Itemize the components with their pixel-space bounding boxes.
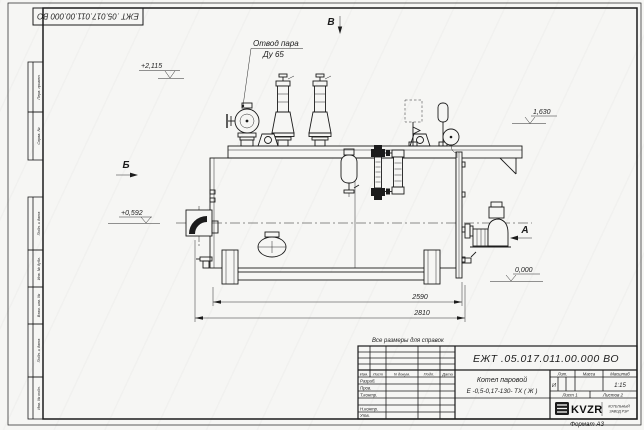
margin-label-sprav-no: Справ. № <box>37 127 41 144</box>
view-label-v: В <box>327 17 334 28</box>
elevation-marks: +2,115 1,630 +0,592 0,000 <box>108 63 557 282</box>
view-label-b: Б <box>122 160 129 171</box>
corner-stamp: ЕЖТ .05.017.011.00.000 ВО <box>33 8 143 25</box>
feed-pump <box>462 202 511 263</box>
title-block: ЕЖТ .05.017.011.00.000 ВО Котел паровой … <box>358 346 637 419</box>
view-arrow-a-icon <box>510 236 518 241</box>
format-label: Формат А3 <box>570 421 604 428</box>
sheet-current: Лист 1 <box>561 393 578 398</box>
steam-outlet-valve <box>227 103 259 146</box>
elevation-left: +0,592 <box>121 210 143 217</box>
elevation-right: 1,630 <box>533 109 551 116</box>
rear-plate <box>456 152 465 278</box>
margin-label-inv-podl: Инв. № подл. <box>37 386 41 410</box>
col-podp: Подп. <box>424 371 435 376</box>
lit-header: Лит. <box>557 371 568 376</box>
col-list: Лист <box>372 371 384 376</box>
col-izm: Изм. <box>360 371 369 376</box>
engineering-drawing-svg: ЕЖТ .05.017.011.00.000 ВО Перв. примен. … <box>0 0 644 430</box>
logo-text: KVZR <box>571 404 603 416</box>
product-model: Е -0,5-0,17-130- ТХ ( Ж ) <box>467 388 538 395</box>
row-utv: Утв. <box>360 413 370 418</box>
margin-label-inv-dubl: Инв. № дубл. <box>37 257 41 280</box>
col-doc: N докум. <box>394 371 410 376</box>
margin-label-podp-data-1: Подп. и дата <box>37 212 41 236</box>
margin-label-podp-data-2: Подп. и дата <box>37 339 41 363</box>
elevation-right-icon <box>525 117 535 124</box>
row-prov: Пров. <box>360 385 371 390</box>
corner-stamp-designation: ЕЖТ .05.017.011.00.000 ВО <box>37 12 139 21</box>
sheet-total: Листов 2 <box>602 393 624 398</box>
elevation-top-icon <box>165 71 175 78</box>
title-designation: ЕЖТ .05.017.011.00.000 ВО <box>473 353 619 365</box>
elevation-top: +2,115 <box>141 63 162 70</box>
view-arrow-b-icon <box>130 173 138 178</box>
row-nkontr: Н.контр. <box>360 406 378 411</box>
reference-note: Все размеры для справок <box>372 338 445 344</box>
scale-header: Масштаб <box>610 371 630 376</box>
row-razrab: Разраб. <box>360 378 376 383</box>
lit-value: И <box>552 383 556 389</box>
row-tkontr: Т.контр. <box>360 392 377 397</box>
product-name: Котел паровой <box>477 376 527 384</box>
drawing-sheet: ЕЖТ .05.017.011.00.000 ВО Перв. примен. … <box>0 0 644 430</box>
boiler-body <box>210 158 456 268</box>
steam-outlet-callout: Отвод пара Ду 65 <box>242 39 303 107</box>
elevation-zero: 0,000 <box>515 267 533 274</box>
margin-label-perv-primen: Перв. примен. <box>37 74 41 99</box>
company-line2: ЗАВОД РЭР <box>609 410 629 414</box>
scale-value: 1:15 <box>614 383 626 389</box>
margin-label-vzam-inv: Взам. инв. № <box>37 294 41 317</box>
kvzr-logo: KVZR КОТЕЛЬНЫЙ ЗАВОД РЭР <box>555 402 630 416</box>
col-data: Дата <box>441 371 453 376</box>
elevation-left-icon <box>141 217 151 223</box>
mass-header: Масса <box>583 371 596 376</box>
manhole <box>258 232 286 257</box>
safety-valves <box>272 74 331 146</box>
elevation-zero-icon <box>506 275 516 281</box>
margin-columns: Перв. примен. Справ. № Подп. и дата Инв.… <box>28 62 43 419</box>
callout-line2: Ду 65 <box>262 50 284 59</box>
boiler-drawing <box>176 74 532 284</box>
dim-2810: 2810 <box>413 310 430 317</box>
burner-elbow <box>186 190 218 268</box>
support-skid <box>222 250 440 284</box>
callout-line1: Отвод пара <box>253 39 299 48</box>
view-label-a: А <box>520 225 528 236</box>
company-line1: КОТЕЛЬНЫЙ <box>608 405 630 409</box>
dim-2590: 2590 <box>411 294 428 301</box>
view-arrow-v-icon <box>338 27 342 35</box>
